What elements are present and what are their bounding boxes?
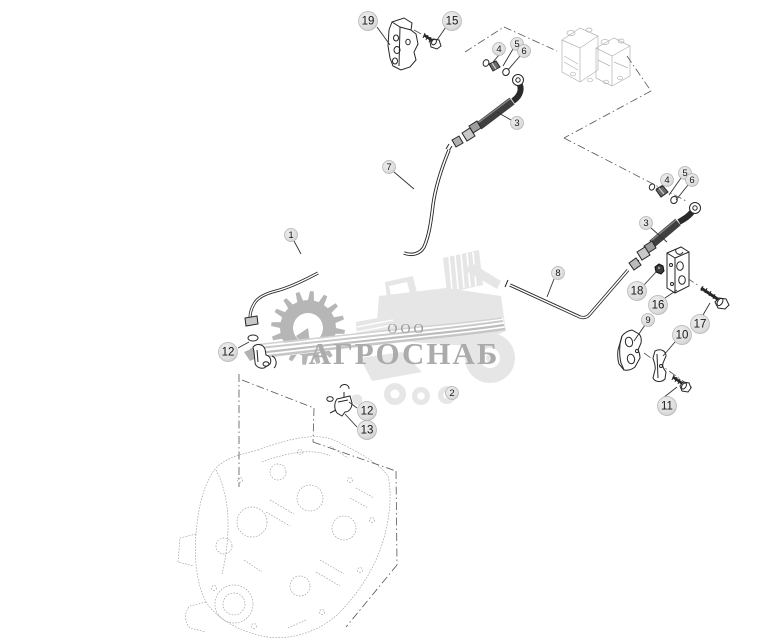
part-15-bolt	[423, 33, 441, 49]
svg-text:7: 7	[386, 162, 391, 173]
svg-text:4: 4	[496, 44, 501, 55]
callout-3[interactable]: 3	[511, 117, 524, 130]
svg-text:8: 8	[555, 268, 560, 279]
callout-leader-6	[676, 185, 688, 200]
callout-leader-10	[663, 342, 675, 356]
svg-text:1: 1	[288, 230, 293, 241]
tube-8	[505, 258, 641, 318]
hose-3-right	[632, 203, 701, 266]
part-19-bracket	[388, 18, 418, 70]
callout-6[interactable]: 6	[518, 45, 531, 58]
callout-leader-18	[644, 272, 656, 285]
callout-8[interactable]: 8	[552, 267, 565, 280]
watermark: ООО АГРОСНАБ	[244, 250, 515, 405]
callout-layer: 191545637112212138456318161791011	[219, 12, 711, 440]
bolt-11	[672, 375, 691, 392]
callout-leader-17	[703, 303, 710, 315]
callout-13[interactable]: 13	[358, 421, 377, 440]
watermark-company-name: АГРОСНАБ	[309, 336, 500, 371]
svg-text:16: 16	[652, 300, 665, 312]
svg-text:12: 12	[361, 406, 374, 418]
callout-3[interactable]: 3	[640, 217, 653, 230]
svg-text:3: 3	[643, 218, 648, 229]
svg-text:9: 9	[645, 315, 650, 326]
callout-7[interactable]: 7	[383, 161, 396, 174]
svg-text:11: 11	[661, 401, 673, 413]
callout-1[interactable]: 1	[285, 229, 298, 242]
transmission-housing-sketch	[178, 437, 390, 638]
callout-19[interactable]: 19	[359, 12, 378, 31]
nut-18	[655, 264, 664, 274]
callout-9[interactable]: 9	[642, 314, 655, 327]
callout-16[interactable]: 16	[649, 296, 668, 315]
callout-leader-7	[394, 172, 414, 189]
svg-text:6: 6	[689, 175, 694, 186]
callout-11[interactable]: 11	[658, 397, 677, 416]
svg-text:12: 12	[222, 347, 235, 359]
svg-text:19: 19	[362, 16, 375, 28]
valve-assembly-sketch	[562, 28, 630, 86]
svg-text:4: 4	[664, 175, 669, 186]
callout-leader-12	[238, 342, 249, 348]
callout-leader-16	[665, 290, 677, 298]
callout-leader-8	[547, 279, 554, 297]
callout-leader-1	[294, 241, 301, 254]
svg-text:10: 10	[676, 330, 689, 342]
callout-leader-13	[345, 414, 357, 427]
callout-15[interactable]: 15	[443, 12, 462, 31]
bolt-17	[701, 286, 729, 309]
fitting-group-right	[648, 183, 678, 205]
callout-17[interactable]: 17	[691, 315, 710, 334]
parts-diagram: ООО АГРОСНАБ	[0, 0, 781, 641]
svg-text:17: 17	[694, 319, 707, 331]
watermark-company-prefix: ООО	[387, 322, 426, 337]
tube-7	[404, 150, 449, 254]
hose-3-top	[446, 75, 524, 152]
callout-10[interactable]: 10	[673, 326, 692, 345]
svg-text:6: 6	[521, 46, 526, 57]
svg-text:2: 2	[449, 388, 454, 399]
callout-18[interactable]: 18	[628, 282, 647, 301]
parts-diagram-page: ООО АГРОСНАБ	[0, 0, 781, 641]
callout-6[interactable]: 6	[686, 174, 699, 187]
elbow-fitting-center	[327, 384, 352, 416]
svg-text:18: 18	[631, 286, 644, 298]
callout-2[interactable]: 2	[446, 387, 459, 400]
callout-12[interactable]: 12	[219, 343, 238, 362]
svg-text:15: 15	[446, 16, 459, 28]
callout-leader-19	[377, 27, 390, 45]
callout-12[interactable]: 12	[358, 402, 377, 421]
callout-leader-6	[508, 56, 520, 70]
plate-16	[667, 247, 689, 293]
svg-text:13: 13	[361, 425, 374, 437]
callout-4[interactable]: 4	[661, 174, 674, 187]
callout-leader-15	[437, 27, 446, 40]
callout-4[interactable]: 4	[493, 43, 506, 56]
svg-text:3: 3	[514, 118, 519, 129]
